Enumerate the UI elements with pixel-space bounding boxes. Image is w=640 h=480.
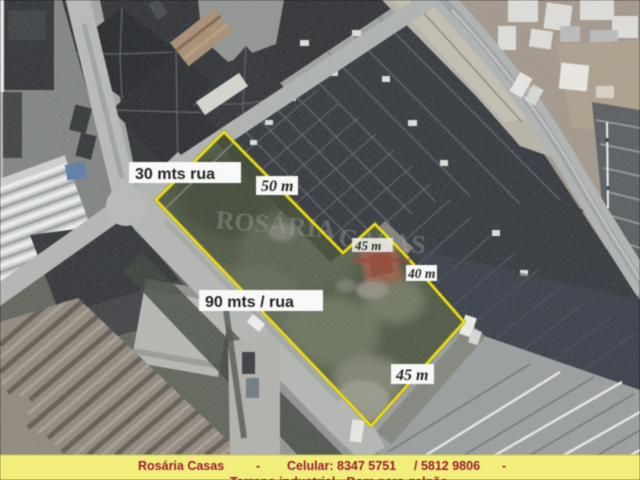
svg-text:-: - <box>502 459 506 473</box>
svg-text:Celular: 8347 5751: Celular: 8347 5751 <box>287 459 396 473</box>
svg-text:Terreno industrial - Bom para: Terreno industrial - Bom para galpão <box>230 475 448 480</box>
svg-text:-: - <box>256 459 260 473</box>
svg-text:Rosária Casas: Rosária Casas <box>138 459 224 473</box>
svg-text:/ 5812 9806: / 5812 9806 <box>414 459 480 473</box>
